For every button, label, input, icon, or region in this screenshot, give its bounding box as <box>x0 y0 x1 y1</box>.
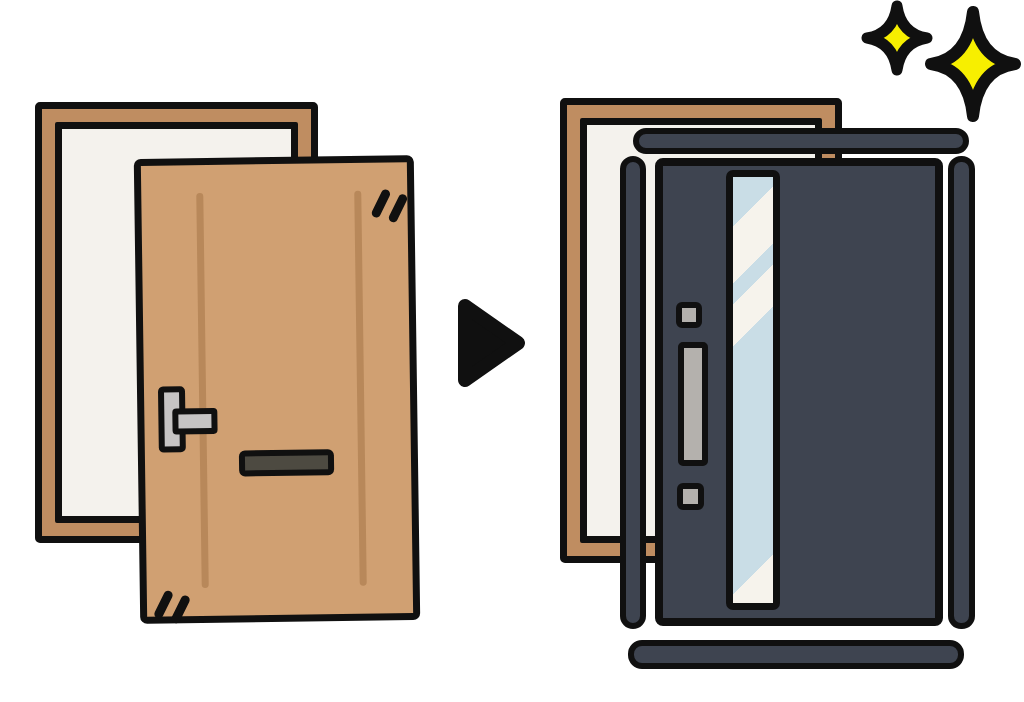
old-door-handle-lever <box>172 408 217 435</box>
illustration-canvas <box>0 0 1024 702</box>
new-frame-rail-top <box>633 128 969 154</box>
sparkle-icons <box>853 0 1024 128</box>
glass-panel <box>726 170 780 610</box>
new-frame-stile-right <box>948 156 975 629</box>
scuff-mark-icon <box>387 193 408 224</box>
wood-grain-line <box>196 193 209 588</box>
right-arrow-icon <box>450 292 534 396</box>
old-door <box>134 155 420 624</box>
sparkle-icon-large <box>931 12 1015 116</box>
scuff-mark-icon <box>370 188 391 219</box>
wood-grain-line <box>354 191 367 586</box>
handle-hardware-top <box>676 302 702 328</box>
scuff-mark-icon <box>170 594 191 625</box>
scuff-mark-icon <box>153 589 174 620</box>
new-frame-rail-bottom <box>628 640 964 669</box>
mail-slot <box>239 449 334 476</box>
new-frame-stile-left <box>620 156 646 629</box>
handle-hardware-bottom <box>677 483 704 510</box>
new-door-handle-bar <box>678 342 708 466</box>
sparkle-icon-small <box>867 6 927 70</box>
new-door <box>655 158 943 626</box>
